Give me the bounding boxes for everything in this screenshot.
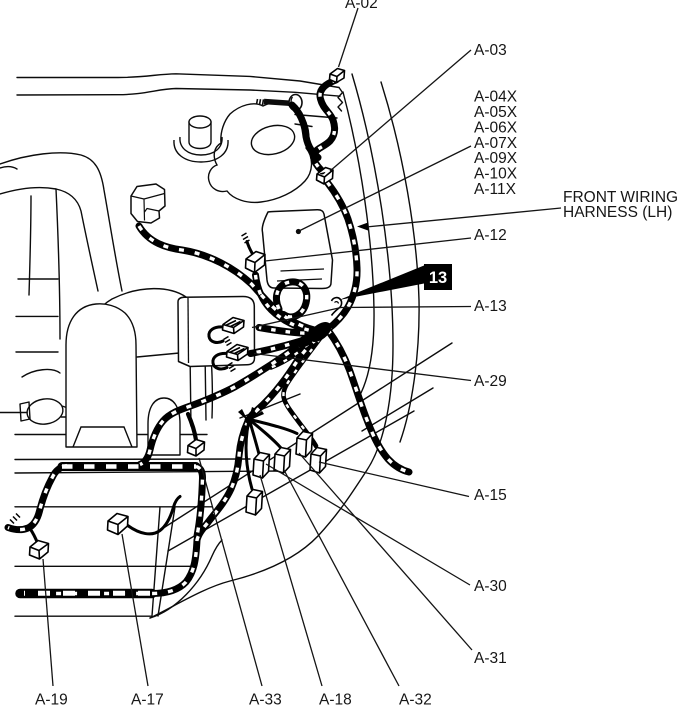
svg-text:A-02: A-02	[345, 0, 378, 12]
svg-text:13: 13	[429, 269, 447, 287]
svg-text:A-32: A-32	[399, 692, 432, 709]
svg-text:A-12: A-12	[474, 227, 507, 244]
svg-text:HARNESS (LH): HARNESS (LH)	[563, 204, 672, 221]
svg-text:A-11X: A-11X	[474, 181, 517, 198]
svg-text:A-31: A-31	[474, 650, 507, 667]
svg-text:A-19: A-19	[35, 692, 68, 709]
svg-text:A-30: A-30	[474, 578, 507, 595]
svg-text:A-18: A-18	[319, 692, 352, 709]
svg-text:A-13: A-13	[474, 298, 507, 315]
svg-text:A-03: A-03	[474, 42, 507, 59]
svg-text:A-33: A-33	[249, 692, 282, 709]
svg-text:A-17: A-17	[131, 692, 164, 709]
svg-text:A-29: A-29	[474, 373, 507, 390]
svg-text:A-15: A-15	[474, 487, 507, 504]
